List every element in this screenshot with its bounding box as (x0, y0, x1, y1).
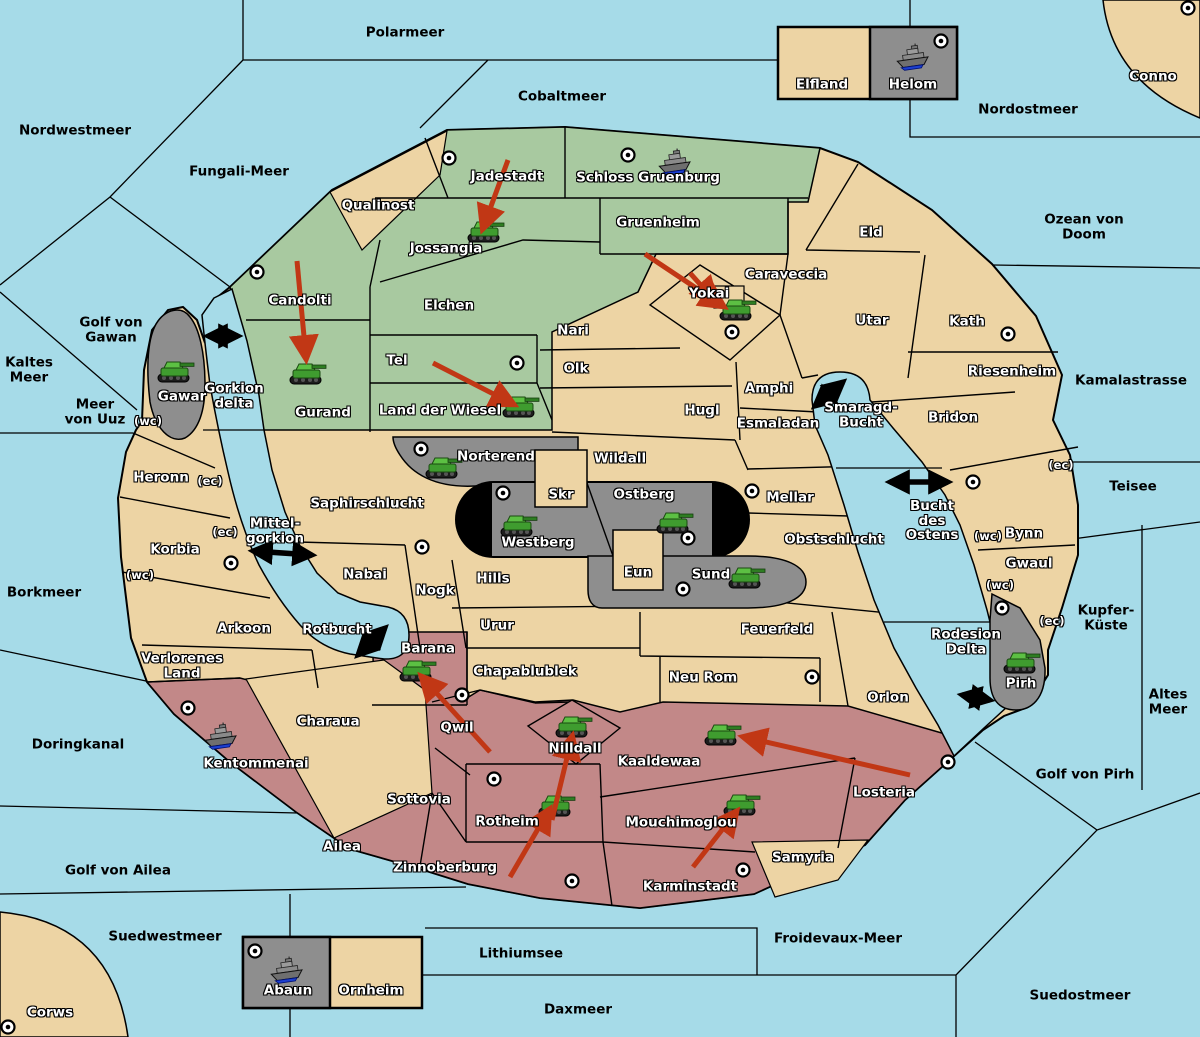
city-marker-icon (488, 773, 501, 786)
city-marker-icon (456, 689, 469, 702)
city-marker-icon (935, 35, 948, 48)
city-marker-icon (967, 476, 980, 489)
abaun-ornheim-box (243, 937, 422, 1008)
city-marker-icon (996, 602, 1009, 615)
city-marker-icon (511, 357, 524, 370)
city-marker-icon (416, 541, 429, 554)
city-marker-icon (806, 671, 819, 684)
city-marker-icon (182, 702, 195, 715)
city-marker-icon (677, 583, 690, 596)
city-marker-icon (942, 756, 955, 769)
city-marker-icon (1182, 2, 1195, 15)
map-canvas (0, 0, 1200, 1037)
city-marker-icon (249, 945, 262, 958)
elfland-helom-box (778, 27, 957, 99)
city-marker-icon (415, 443, 428, 456)
territory-skr[interactable] (535, 450, 587, 507)
city-marker-icon (746, 485, 759, 498)
territory-eun[interactable] (613, 530, 663, 590)
city-marker-icon (566, 875, 579, 888)
city-marker-icon (737, 864, 750, 877)
city-marker-icon (2, 1021, 15, 1034)
city-marker-icon (1002, 328, 1015, 341)
city-marker-icon (497, 487, 510, 500)
city-marker-icon (726, 326, 739, 339)
risk-style-game-map: PolarmeerCobaltmeerNordostmeerNordwestme… (0, 0, 1200, 1037)
city-marker-icon (225, 557, 238, 570)
city-marker-icon (443, 152, 456, 165)
city-marker-icon (622, 149, 635, 162)
city-marker-icon (251, 266, 264, 279)
